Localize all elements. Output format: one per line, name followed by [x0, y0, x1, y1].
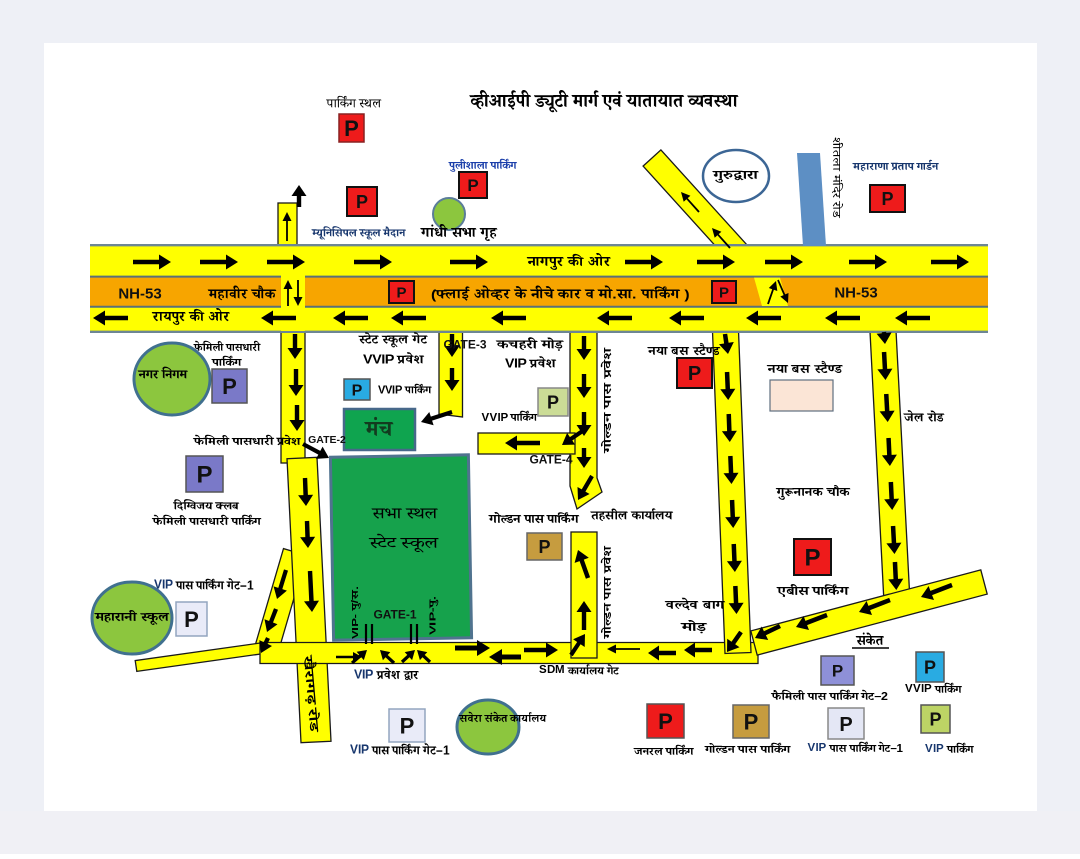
svg-text:NH-53: NH-53 [118, 285, 161, 302]
svg-text:P: P [924, 658, 936, 678]
svg-text:P: P [804, 545, 820, 572]
svg-text:GATE-4: GATE-4 [529, 452, 572, 466]
svg-text:NH-53: NH-53 [834, 284, 877, 301]
svg-text:P: P [547, 393, 559, 413]
svg-text:P: P [658, 709, 673, 734]
svg-text:P: P [400, 713, 415, 738]
svg-text:P: P [344, 116, 359, 141]
svg-text:GATE-3: GATE-3 [443, 337, 486, 351]
svg-text:P: P [719, 284, 729, 301]
svg-text:GATE-2: GATE-2 [308, 434, 346, 446]
svg-text:P: P [356, 192, 368, 212]
svg-text:P: P [467, 176, 478, 195]
svg-text:P: P [396, 284, 406, 301]
svg-text:P: P [352, 382, 363, 399]
svg-text:P: P [184, 607, 199, 632]
svg-text:P: P [196, 462, 212, 489]
svg-text:P: P [538, 537, 550, 557]
svg-text:P: P [881, 189, 893, 209]
svg-text:P: P [744, 709, 759, 734]
svg-text:P: P [222, 374, 237, 399]
svg-text:GATE-1: GATE-1 [373, 607, 416, 621]
svg-text:P: P [688, 363, 701, 385]
svg-text:P: P [929, 710, 941, 730]
svg-text:P: P [839, 714, 852, 736]
svg-text:P: P [832, 662, 843, 681]
